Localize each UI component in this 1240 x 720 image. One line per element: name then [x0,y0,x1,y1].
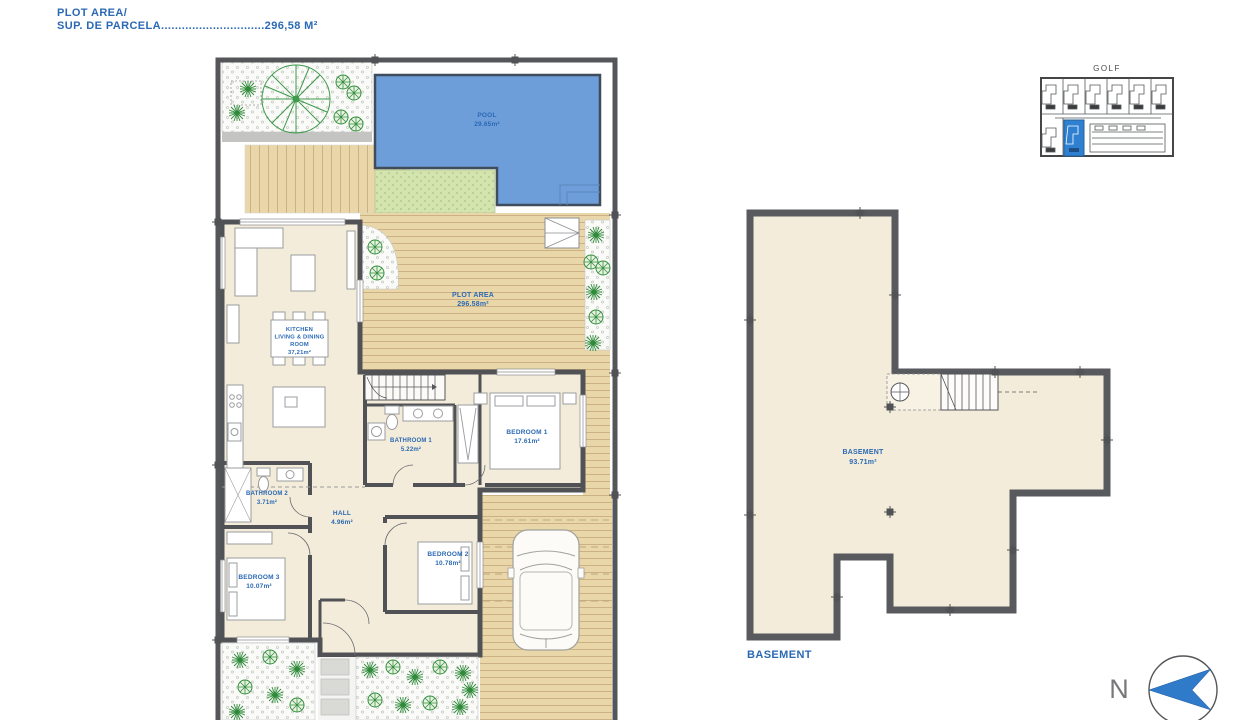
closet [458,405,478,463]
bathroom2-label: BATHROOM 2 [246,491,288,497]
basement-area: 93.71m² [849,459,877,466]
site-key-map: GOLF [1035,58,1180,163]
north-arrow: N [1105,638,1240,720]
staircase [365,375,445,400]
pool-area: 29.65m² [474,121,500,128]
plot-area-label: PLOT AREA [452,292,494,299]
entry-walk [318,657,356,720]
plot-area-area: 296.58m² [457,301,489,308]
turf-area [375,170,495,213]
plot-area-header: PLOT AREA/ SUP. DE PARCELA..............… [57,7,318,33]
bathroom1-area: 5.22m² [401,446,421,453]
architectural-plan-sheet: PLOT AREA/ SUP. DE PARCELA..............… [0,0,1240,720]
basement-caption: BASEMENT [747,649,812,661]
bedroom2-area: 10.78m² [435,560,461,567]
kitchen-label-1: KITCHEN [286,327,313,333]
bedroom2-label: BEDROOM 2 [427,551,468,558]
bedroom3-label: BEDROOM 3 [238,574,279,581]
compass-needle [1149,669,1211,710]
outdoor-shower [545,218,579,248]
ground-floor-plan: POOL 29.65m² PLOT AREA 296.58m² KITCHEN … [215,55,640,720]
deck-east-strip [583,373,610,495]
car [508,530,584,650]
garden-east-strip [584,220,610,351]
basement-floor [750,213,1107,637]
hall-area: 4.96m² [331,519,353,526]
basement-label: BASEMENT [843,449,884,456]
bedroom3-area: 10.07m² [246,583,272,590]
basement-plan: BASEMENT 93.71m² [740,205,1115,645]
garden-sw [222,643,315,720]
plot-area-value: SUP. DE PARCELA.........................… [57,20,318,33]
bedroom1-label: BEDROOM 1 [506,429,547,436]
hall-label: HALL [333,510,351,517]
bathroom1-label: BATHROOM 1 [390,438,432,444]
kitchen-label-3: ROOM [290,342,309,348]
bathroom2-area: 3.71m² [257,499,277,506]
kitchen-label-2: LIVING & DINING [274,335,324,341]
key-map-title: GOLF [1093,64,1121,73]
north-letter: N [1109,674,1129,704]
kitchen-area: 37,21m² [288,349,311,356]
garden-se [356,657,478,720]
bedroom1-area: 17.61m² [514,438,540,445]
plot-area-title: PLOT AREA/ [57,7,318,20]
pool-label: POOL [477,112,496,119]
